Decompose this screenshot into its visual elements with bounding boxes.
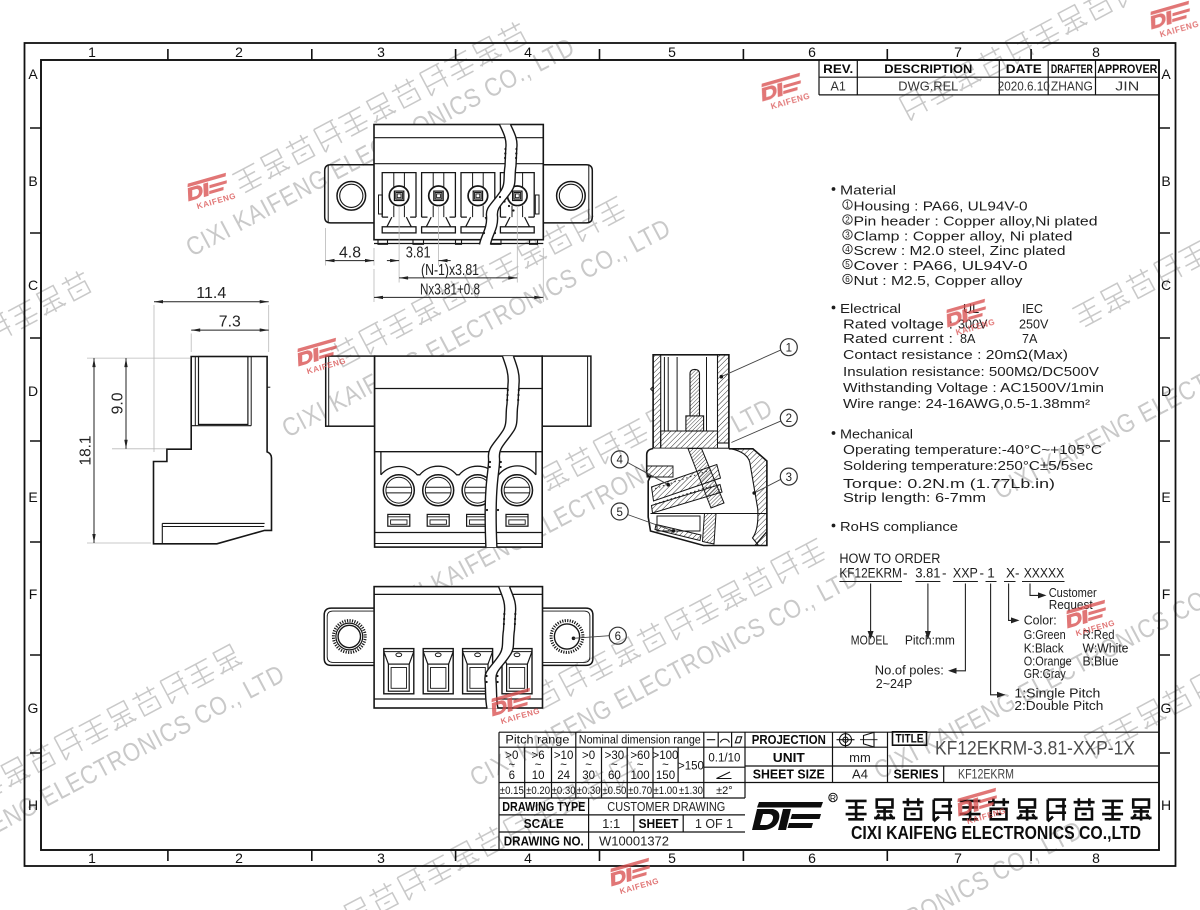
svg-text:GR:Gray: GR:Gray [1024,667,1067,681]
svg-text:UNIT: UNIT [773,750,805,765]
svg-text:4.8: 4.8 [339,245,361,262]
svg-text:Withstanding Voltage : AC1500V: Withstanding Voltage : AC1500V/1min [843,381,1104,395]
svg-text:R: R [830,793,836,803]
svg-text:8: 8 [1092,850,1100,866]
svg-text:DWG.REL: DWG.REL [898,80,958,94]
svg-text:A4: A4 [852,767,868,782]
svg-text:60: 60 [608,770,621,782]
svg-text:Housing : PA66, UL94V-0: Housing : PA66, UL94V-0 [854,200,1028,214]
svg-text:MODEL: MODEL [851,634,889,648]
svg-text:D: D [1161,383,1171,399]
svg-text:REV.: REV. [823,62,853,76]
svg-text:IEC: IEC [1022,302,1043,316]
svg-text:mm: mm [849,750,871,765]
svg-text:6: 6 [845,275,850,284]
svg-text:Pitch:mm: Pitch:mm [905,634,955,648]
svg-text:5: 5 [616,507,622,519]
svg-text:9.0: 9.0 [109,392,126,414]
svg-text:KF12EKRM: KF12EKRM [958,767,1014,782]
svg-text:±0.30: ±0.30 [577,785,601,797]
svg-text:DESCRIPTION: DESCRIPTION [884,62,972,76]
svg-text:E: E [1161,489,1170,505]
svg-text:F: F [29,586,38,602]
svg-text:H: H [1161,797,1171,813]
svg-text:100: 100 [631,770,650,782]
svg-text:JIN: JIN [1115,80,1139,94]
svg-text:SHEET SIZE: SHEET SIZE [753,767,825,782]
svg-text:RoHS compliance: RoHS compliance [840,519,958,534]
svg-text:Cover : PA66, UL94V-0: Cover : PA66, UL94V-0 [854,259,1028,273]
svg-text:3: 3 [377,850,385,866]
svg-text:Rated current :: Rated current : [843,332,953,346]
svg-text:±1.30: ±1.30 [679,785,703,797]
svg-text:2020.6.10: 2020.6.10 [998,80,1050,94]
svg-text:6: 6 [808,850,816,866]
svg-text:SERIES: SERIES [894,767,939,782]
svg-text:5: 5 [668,44,676,60]
svg-text:Wire range: 24-16AWG,0.5-1.38m: Wire range: 24-16AWG,0.5-1.38mm² [843,397,1090,411]
svg-text:1: 1 [786,343,792,355]
svg-text:CIXI KAIFENG ELECTRONICS CO.,L: CIXI KAIFENG ELECTRONICS CO.,LTD [851,823,1141,843]
svg-text:KF12EKRM-3.81-XXP-1X: KF12EKRM-3.81-XXP-1X [935,739,1135,760]
svg-text:150: 150 [656,770,675,782]
svg-text:3: 3 [786,472,792,484]
svg-text:3: 3 [845,231,850,240]
svg-text:Clamp : Copper alloy, Ni plate: Clamp : Copper alloy, Ni plated [854,230,1073,244]
svg-text:Electrical: Electrical [840,301,901,316]
svg-text:Pitch range: Pitch range [505,735,569,747]
svg-text:DRAWING TYPE: DRAWING TYPE [502,799,585,814]
svg-text:1 OF 1: 1 OF 1 [695,816,733,831]
svg-text:1: 1 [987,566,995,581]
svg-text:B:Blue: B:Blue [1083,655,1119,669]
svg-text:HOW TO ORDER: HOW TO ORDER [839,551,940,566]
svg-text:2: 2 [786,413,792,425]
svg-text:7: 7 [954,850,962,866]
svg-text:G:Green: G:Green [1024,628,1066,642]
svg-text:APPROVER: APPROVER [1097,62,1157,76]
svg-text:ZHANG: ZHANG [1051,80,1093,94]
svg-text:±0.20: ±0.20 [526,785,550,797]
svg-text:Color:: Color: [1024,614,1057,628]
svg-text:A: A [1161,66,1171,82]
svg-text:DRAFTER: DRAFTER [1051,62,1093,76]
svg-text:Operating temperature:-40°C~+1: Operating temperature:-40°C~+105°C [843,443,1102,457]
svg-text:24: 24 [557,770,570,782]
svg-text:18.1: 18.1 [77,436,94,466]
svg-text:C: C [28,277,38,293]
svg-text:7: 7 [954,44,962,60]
svg-text:Nx3.81+0.8: Nx3.81+0.8 [420,281,480,298]
svg-text:Strip length: 6-7mm: Strip length: 6-7mm [843,491,986,505]
svg-text:7A: 7A [1022,332,1038,346]
svg-text:W:White: W:White [1083,642,1129,656]
svg-text:250V: 250V [1019,318,1049,332]
svg-text:G: G [28,700,39,716]
svg-text:±2°: ±2° [716,785,733,797]
svg-text:F: F [1162,586,1171,602]
svg-text:±0.15: ±0.15 [500,785,524,797]
svg-text:11.4: 11.4 [196,285,226,302]
svg-text:1: 1 [845,201,850,210]
svg-text:4: 4 [845,245,850,254]
svg-text:PROJECTION: PROJECTION [752,732,826,747]
svg-text:5: 5 [845,260,850,269]
svg-text:2~24P: 2~24P [876,677,913,691]
svg-text:A1: A1 [831,80,846,94]
svg-text:1:1: 1:1 [602,816,620,831]
svg-text:D: D [28,383,38,399]
svg-text:(N-1)x3.81: (N-1)x3.81 [421,262,479,279]
svg-text:4: 4 [524,850,532,866]
svg-text:>150: >150 [678,761,704,773]
svg-text:B: B [28,173,37,189]
svg-text:SHEET: SHEET [639,816,679,831]
svg-text:Rated voltage :: Rated voltage : [843,318,953,332]
svg-text:6: 6 [509,770,515,782]
svg-text:Screw : M2.0 steel, Zinc plate: Screw : M2.0 steel, Zinc plated [854,244,1066,258]
svg-text:6: 6 [808,44,816,60]
svg-text:3.81: 3.81 [406,245,431,262]
svg-text:6: 6 [615,631,621,643]
svg-text:DRAWING NO.: DRAWING NO. [504,833,584,848]
svg-text:W10001372: W10001372 [599,833,669,848]
svg-text:-: - [980,566,985,581]
svg-text:8: 8 [1092,44,1100,60]
svg-text:E: E [28,489,37,505]
svg-text:4: 4 [616,455,623,467]
svg-text:-: - [1015,566,1020,581]
svg-text:Nut : M2.5, Copper alloy: Nut : M2.5, Copper alloy [854,274,1024,288]
svg-text:±0.70: ±0.70 [628,785,652,797]
svg-text:2: 2 [235,850,243,866]
svg-text:10: 10 [532,770,545,782]
svg-text:G: G [1161,700,1172,716]
svg-text:-: - [903,566,908,581]
svg-text:±0.30: ±0.30 [552,785,576,797]
svg-text:K:Black: K:Black [1024,642,1065,656]
svg-text:5: 5 [668,850,676,866]
svg-text:Nominal dimension range: Nominal dimension range [579,735,701,747]
svg-text:3.81: 3.81 [915,566,940,581]
svg-text:3: 3 [377,44,385,60]
svg-text:No.of poles:: No.of poles: [875,664,944,678]
svg-text:Insulation resistance: 500MΩ/D: Insulation resistance: 500MΩ/DC500V [843,365,1100,379]
svg-text:CUSTOMER DRAWING: CUSTOMER DRAWING [607,799,725,814]
svg-text:SCALE: SCALE [524,816,564,831]
svg-text:XXXXX: XXXXX [1024,566,1065,581]
svg-text:2:Double Pitch: 2:Double Pitch [1014,699,1103,713]
svg-text:Material: Material [840,183,896,198]
svg-text:C: C [1161,277,1171,293]
svg-text:X: X [1006,566,1015,581]
svg-text:±0.50: ±0.50 [602,785,626,797]
svg-text:2: 2 [845,216,850,225]
svg-text:XXP: XXP [953,566,978,581]
svg-text:KF12EKRM: KF12EKRM [839,566,902,581]
svg-text:4: 4 [524,44,532,60]
svg-text:DATE: DATE [1006,62,1042,76]
svg-text:A: A [28,66,38,82]
svg-text:TITLE: TITLE [896,733,924,745]
svg-text:Mechanical: Mechanical [840,427,913,442]
svg-text:Pin header : Copper alloy,Ni p: Pin header : Copper alloy,Ni plated [854,215,1098,229]
svg-text:±1.00: ±1.00 [654,785,678,797]
svg-text:7.3: 7.3 [219,313,241,330]
svg-text:2: 2 [235,44,243,60]
svg-text:H: H [28,797,38,813]
svg-text:-: - [942,566,947,581]
svg-text:30: 30 [582,770,595,782]
svg-text:Contact resistance : 20mΩ(Max): Contact resistance : 20mΩ(Max) [843,348,1068,362]
svg-text:Torque: 0.2N.m (1.77Lb.in): Torque: 0.2N.m (1.77Lb.in) [843,477,1055,491]
svg-text:1: 1 [88,850,96,866]
svg-text:B: B [1161,173,1170,189]
svg-text:Soldering temperature:250°C±5/: Soldering temperature:250°C±5/5sec [843,459,1093,473]
svg-text:1: 1 [88,44,96,60]
svg-text:0.1/10: 0.1/10 [708,753,740,765]
